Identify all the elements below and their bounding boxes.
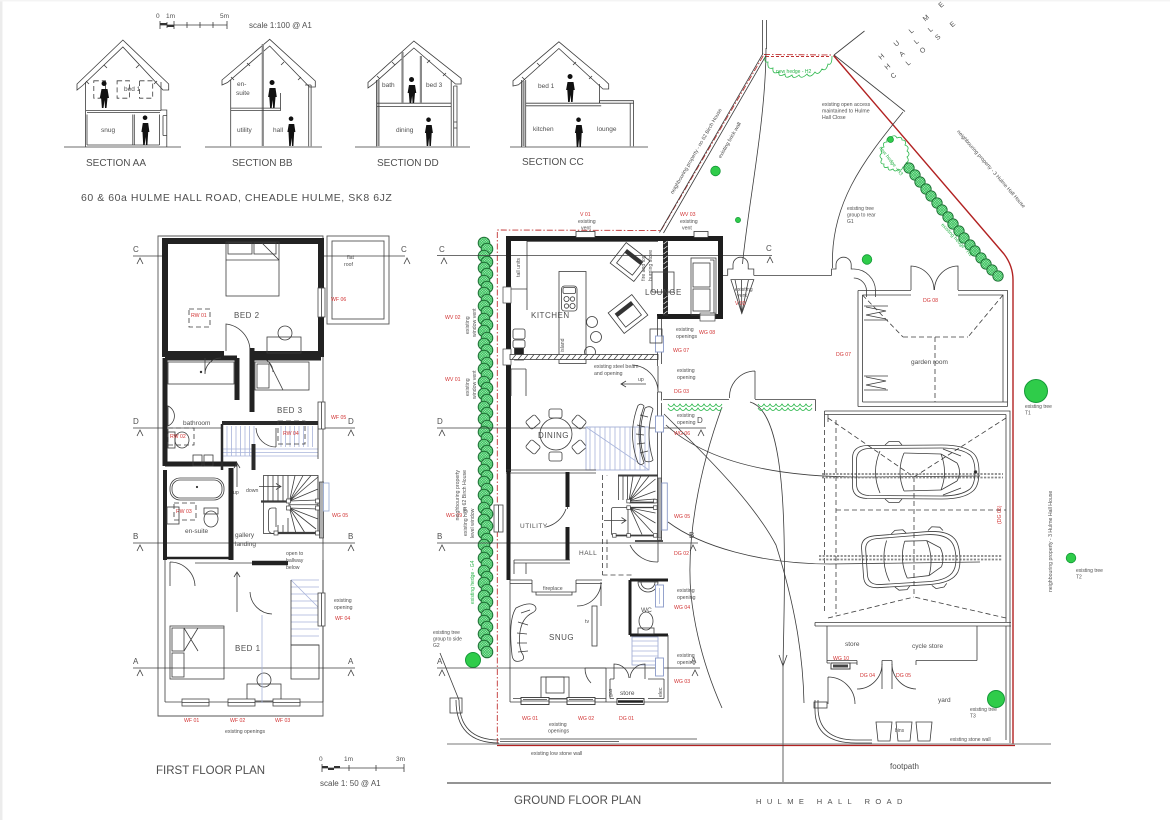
svg-text:DG 03: DG 03 — [674, 389, 689, 395]
svg-text:WG 07: WG 07 — [673, 348, 689, 354]
svg-text:T3: T3 — [970, 714, 976, 720]
svg-text:suite: suite — [236, 90, 250, 97]
svg-text:burning stove: burning stove — [648, 250, 654, 281]
svg-text:existing stone wall: existing stone wall — [950, 737, 991, 743]
svg-text:hallway: hallway — [286, 558, 304, 564]
svg-text:existing: existing — [677, 368, 695, 374]
svg-text:SECTION BB: SECTION BB — [232, 158, 293, 169]
svg-text:C: C — [401, 245, 407, 254]
svg-text:GROUND FLOOR PLAN: GROUND FLOOR PLAN — [514, 795, 641, 807]
svg-text:D: D — [697, 416, 703, 425]
svg-text:C: C — [133, 245, 139, 254]
svg-text:opening: opening — [677, 375, 696, 381]
svg-text:existing low stone wall: existing low stone wall — [531, 751, 582, 757]
svg-text:open to: open to — [286, 551, 303, 557]
svg-text:D: D — [437, 417, 443, 426]
svg-text:V 02: V 02 — [735, 301, 746, 307]
svg-text:hall: hall — [273, 127, 284, 134]
svg-text:existing tree: existing tree — [433, 630, 460, 636]
svg-text:RW 01: RW 01 — [191, 313, 207, 319]
svg-text:maintained to Hulme: maintained to Hulme — [822, 109, 870, 115]
svg-text:neighbouring property: neighbouring property — [455, 470, 461, 521]
svg-text:DG 02: DG 02 — [674, 551, 689, 557]
svg-text:openings: openings — [548, 729, 569, 735]
svg-text:store: store — [620, 690, 635, 697]
svg-text:WG 05: WG 05 — [674, 514, 690, 520]
svg-text:D: D — [348, 417, 354, 426]
svg-text:bed 1: bed 1 — [538, 83, 555, 90]
svg-text:HULME HALL ROAD: HULME HALL ROAD — [756, 797, 908, 806]
svg-text:openings: openings — [676, 334, 697, 340]
svg-text:scale 1:100 @ A1: scale 1:100 @ A1 — [249, 21, 312, 30]
svg-text:dining: dining — [396, 127, 414, 134]
svg-text:RW 03: RW 03 — [176, 509, 192, 515]
svg-text:store: store — [845, 641, 860, 648]
svg-text:new hedge - H2: new hedge - H2 — [776, 69, 812, 75]
svg-text:up: up — [233, 490, 239, 496]
svg-text:existing: existing — [334, 598, 352, 604]
svg-text:WG 02: WG 02 — [578, 716, 594, 722]
svg-text:WG 01: WG 01 — [522, 716, 538, 722]
svg-text:bed 1: bed 1 — [124, 86, 141, 93]
svg-text:existing tree: existing tree — [1076, 568, 1103, 574]
svg-text:BED 2: BED 2 — [234, 311, 260, 320]
svg-text:opening: opening — [677, 660, 696, 666]
svg-text:FIRST FLOOR PLAN: FIRST FLOOR PLAN — [156, 765, 265, 777]
svg-text:0: 0 — [319, 756, 323, 763]
svg-text:DINING: DINING — [538, 431, 569, 440]
svg-text:existing: existing — [677, 588, 695, 594]
svg-text:KITCHEN: KITCHEN — [531, 311, 570, 320]
svg-text:en-suite: en-suite — [185, 528, 209, 535]
svg-text:(DG 06): (DG 06) — [997, 505, 1003, 524]
svg-text:B: B — [133, 532, 138, 541]
svg-text:C: C — [439, 245, 445, 254]
svg-text:3m: 3m — [396, 756, 405, 763]
svg-text:DG 04: DG 04 — [860, 673, 875, 679]
svg-text:bed 3: bed 3 — [426, 82, 443, 89]
svg-text:SECTION DD: SECTION DD — [377, 158, 439, 169]
svg-text:vent: vent — [737, 293, 747, 299]
svg-text:60 & 60a HULME HALL ROAD, CHEA: 60 & 60a HULME HALL ROAD, CHEADLE HULME,… — [81, 192, 392, 204]
svg-text:WG 04: WG 04 — [674, 605, 690, 611]
svg-text:and opening: and opening — [594, 371, 623, 377]
svg-text:D: D — [133, 417, 139, 426]
svg-text:B: B — [437, 532, 442, 541]
svg-text:en-: en- — [237, 81, 246, 88]
svg-text:roof: roof — [344, 262, 353, 268]
svg-text:fireplace: fireplace — [543, 586, 563, 592]
svg-text:group to rear: group to rear — [847, 213, 876, 219]
svg-text:Hall Close: Hall Close — [822, 115, 846, 121]
svg-text:G1: G1 — [847, 219, 854, 225]
svg-text:- no 62 Birch House: - no 62 Birch House — [462, 470, 468, 516]
svg-text:landing: landing — [235, 541, 256, 548]
svg-text:SECTION AA: SECTION AA — [86, 158, 146, 169]
svg-text:SNUG: SNUG — [549, 633, 574, 642]
svg-text:fire and log: fire and log — [641, 255, 647, 281]
svg-text:scale 1: 50 @ A1: scale 1: 50 @ A1 — [320, 779, 381, 788]
svg-text:existing: existing — [465, 316, 471, 334]
svg-text:LOUNGE: LOUNGE — [645, 288, 682, 297]
svg-text:existing: existing — [680, 219, 698, 225]
svg-text:RW 02: RW 02 — [170, 434, 186, 440]
svg-text:B: B — [689, 531, 694, 540]
svg-text:existing: existing — [677, 653, 695, 659]
svg-text:WV 03: WV 03 — [680, 212, 696, 218]
svg-text:gas: gas — [608, 688, 614, 697]
svg-text:WV 01: WV 01 — [445, 377, 461, 383]
svg-text:WG 06: WG 06 — [674, 431, 690, 437]
svg-text:vent: vent — [581, 226, 591, 232]
svg-text:down: down — [246, 488, 259, 494]
svg-text:up: up — [638, 377, 644, 383]
svg-text:window vent: window vent — [472, 370, 478, 399]
svg-text:WV 02: WV 02 — [445, 315, 461, 321]
svg-text:utility: utility — [237, 127, 253, 134]
svg-text:V 01: V 01 — [580, 212, 591, 218]
svg-text:1m: 1m — [166, 13, 175, 20]
svg-text:kitchen: kitchen — [533, 126, 554, 133]
svg-text:WG 03: WG 03 — [674, 679, 690, 685]
svg-text:HALL: HALL — [579, 550, 597, 557]
svg-text:elec: elec — [658, 687, 664, 697]
svg-text:existing: existing — [677, 413, 695, 419]
svg-text:existing open access: existing open access — [822, 102, 871, 108]
svg-text:WG 10: WG 10 — [833, 656, 849, 662]
svg-text:tall units: tall units — [516, 258, 522, 277]
svg-text:existing: existing — [676, 327, 694, 333]
svg-text:existing: existing — [465, 378, 471, 396]
svg-text:neighbouring property - 3 Hulm: neighbouring property - 3 Hulme Hall Hou… — [1048, 491, 1054, 592]
svg-text:5m: 5m — [220, 13, 229, 20]
svg-text:bathroom: bathroom — [183, 420, 210, 427]
svg-text:existing tree: existing tree — [847, 206, 874, 212]
svg-text:existing openings: existing openings — [225, 729, 265, 735]
svg-text:existing: existing — [578, 219, 596, 225]
svg-text:DG 08: DG 08 — [923, 298, 938, 304]
svg-text:vent: vent — [682, 226, 692, 232]
svg-text:garden room: garden room — [911, 359, 948, 366]
svg-text:G2: G2 — [433, 643, 440, 649]
svg-text:gallery: gallery — [235, 532, 255, 539]
svg-text:UTILITY: UTILITY — [520, 523, 548, 530]
svg-text:lounge: lounge — [597, 126, 617, 133]
svg-text:WF 06: WF 06 — [331, 297, 346, 303]
svg-text:BED 3: BED 3 — [277, 406, 303, 415]
svg-text:cycle store: cycle store — [912, 643, 943, 650]
svg-text:DG 07: DG 07 — [836, 352, 851, 358]
svg-text:opening: opening — [334, 605, 353, 611]
svg-text:A: A — [133, 657, 139, 666]
svg-text:WF 05: WF 05 — [331, 415, 346, 421]
svg-text:T1: T1 — [1025, 411, 1031, 417]
svg-text:C: C — [766, 244, 772, 253]
svg-text:level window: level window — [470, 508, 476, 538]
svg-text:existing tree: existing tree — [1025, 404, 1052, 410]
svg-text:T2: T2 — [1076, 575, 1082, 581]
svg-text:island: island — [560, 338, 566, 352]
svg-text:WF 04: WF 04 — [335, 616, 350, 622]
svg-text:existing: existing — [549, 722, 567, 728]
svg-text:bath: bath — [382, 82, 395, 89]
svg-text:A: A — [348, 657, 354, 666]
svg-text:bins: bins — [895, 728, 905, 734]
svg-text:WG 05: WG 05 — [332, 513, 348, 519]
svg-text:WF 02: WF 02 — [230, 718, 245, 724]
svg-text:B: B — [348, 532, 353, 541]
svg-text:WG 08: WG 08 — [699, 330, 715, 336]
svg-text:DG 05: DG 05 — [896, 673, 911, 679]
svg-text:SECTION CC: SECTION CC — [522, 157, 584, 168]
svg-text:1m: 1m — [344, 756, 353, 763]
svg-text:BED 1: BED 1 — [235, 644, 261, 653]
svg-text:WF 03: WF 03 — [275, 718, 290, 724]
svg-text:existing steel beam: existing steel beam — [594, 364, 638, 370]
svg-text:RW 04: RW 04 — [283, 431, 299, 437]
svg-text:tv: tv — [585, 619, 589, 625]
svg-text:group to side: group to side — [433, 637, 462, 643]
svg-text:opening: opening — [677, 595, 696, 601]
svg-text:yard: yard — [938, 697, 951, 704]
svg-text:snug: snug — [101, 127, 115, 134]
svg-text:below: below — [286, 565, 300, 571]
svg-text:WF 01: WF 01 — [184, 718, 199, 724]
svg-text:existing tree: existing tree — [970, 707, 997, 713]
svg-text:footpath: footpath — [890, 762, 919, 771]
svg-text:existing hedge - G4: existing hedge - G4 — [470, 560, 476, 604]
svg-text:0: 0 — [156, 13, 160, 20]
svg-text:opening: opening — [677, 420, 696, 426]
svg-text:window vent: window vent — [472, 308, 478, 337]
svg-text:DG 01: DG 01 — [619, 716, 634, 722]
